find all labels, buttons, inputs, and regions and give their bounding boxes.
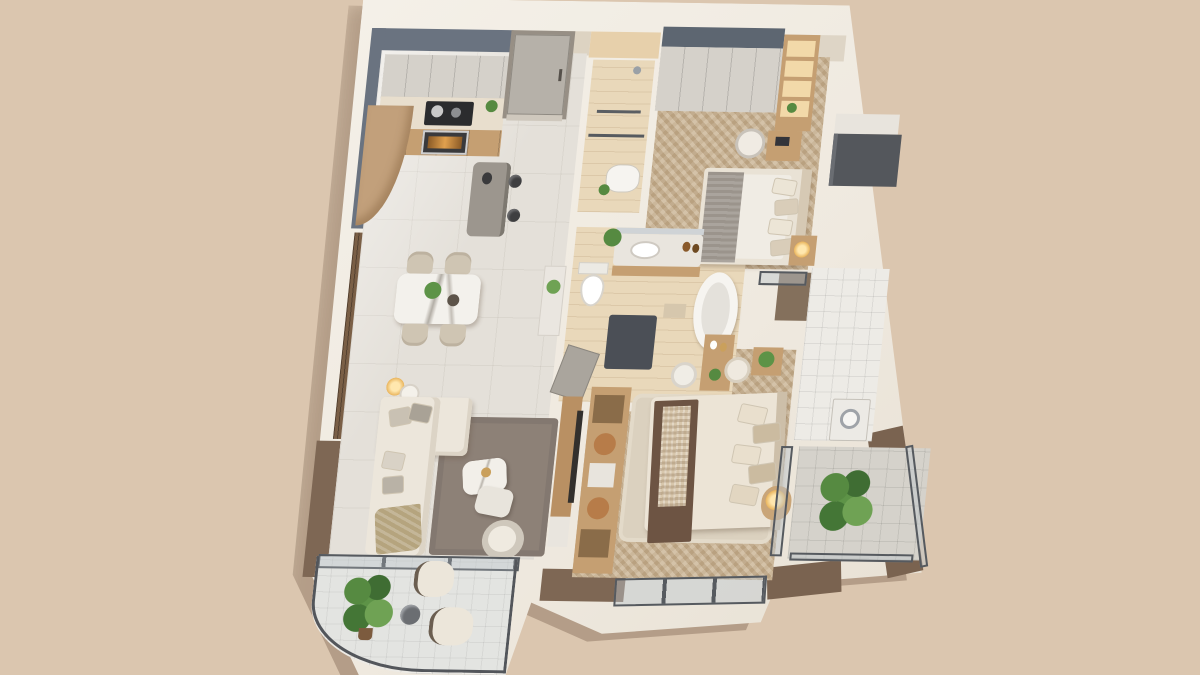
wardrobe-top-band [662,27,786,49]
shower-tile-wall-band [589,31,661,58]
dining-chair-1 [406,251,434,273]
vanity-cubby-2 [578,529,611,558]
shelf-cubby-2 [784,61,814,77]
door-threshold [506,114,562,121]
floor-plan [306,10,1015,675]
vanity-shelf-front [612,266,701,277]
vanity-box [587,463,615,487]
bedroom2-window [758,271,807,286]
plant-pot [358,628,373,640]
wash-basin [604,164,641,193]
upper-cabinets [381,54,510,100]
bath-mat [663,304,686,318]
dining-chair-2 [444,252,472,274]
apartment-render [0,0,1200,675]
master-south-wall-right [767,560,842,600]
dining-table [393,273,482,324]
wing-cabinet-dark [829,134,902,187]
vanity-cubby-1 [592,395,625,424]
master-pillow-2 [752,422,781,444]
toilet-tank [578,262,609,274]
shelf-cubby-1 [786,41,816,57]
laptop [775,137,790,146]
lounge-chair-2 [427,607,475,646]
bed2-pillow-1 [771,177,798,197]
oven-window [427,136,462,149]
wardrobe [655,47,783,113]
master-window-wall [613,576,767,607]
balcony-monstera-plant [336,571,399,636]
right-balcony-plant [812,467,879,536]
console-marble-niche [547,517,570,547]
shelf-cubby-3 [782,81,812,97]
shower-mat [604,315,658,370]
throw-blanket [374,503,422,554]
sofa-pillow-4 [382,475,404,495]
sofa-pillow-3 [381,450,407,471]
wing-cabinet-top [834,114,900,135]
patterned-throw [658,406,691,507]
bed2-pillow-2 [774,198,798,216]
master-pillow-3 [731,444,762,466]
bed2-pillow-3 [767,218,794,236]
master-pillow-5 [728,483,760,506]
